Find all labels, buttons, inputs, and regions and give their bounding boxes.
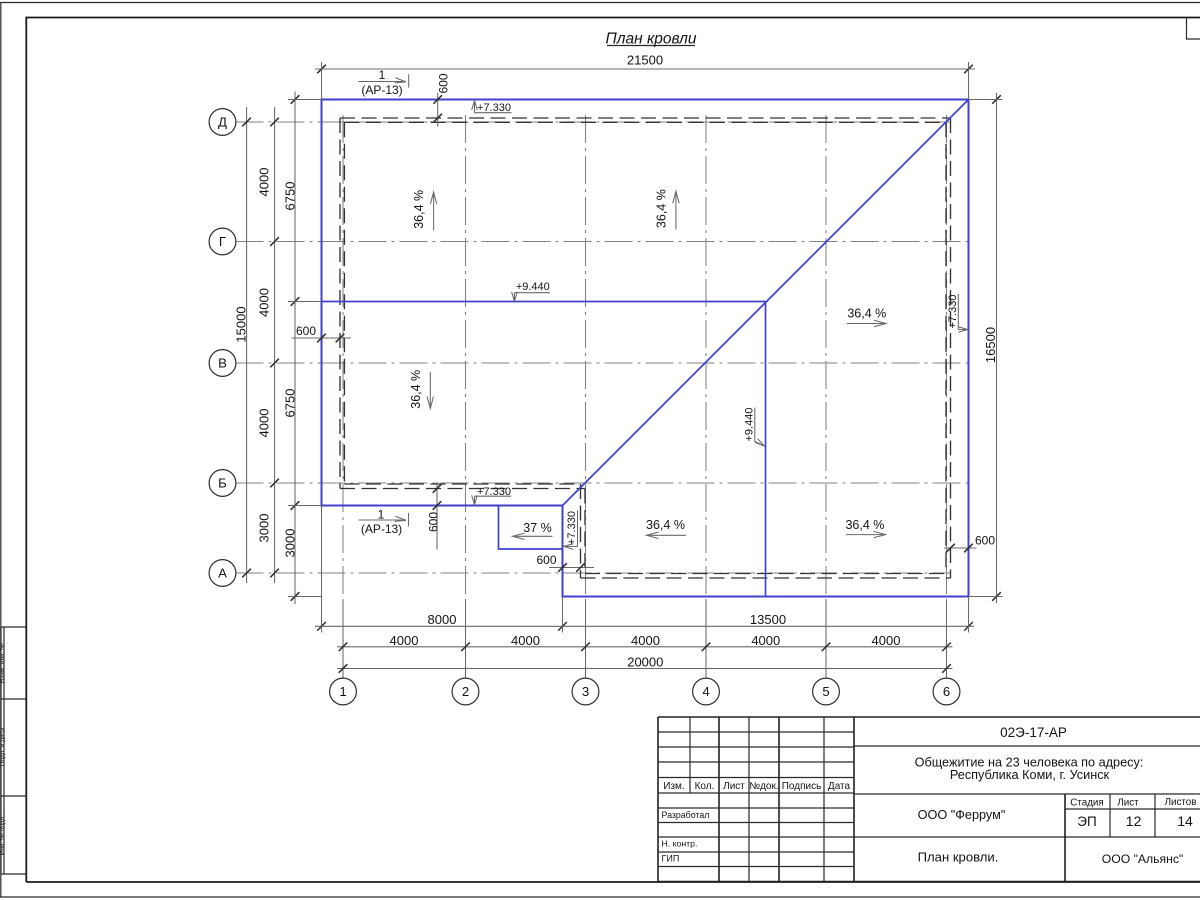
svg-text:(АР-13): (АР-13) [361, 83, 402, 97]
svg-text:Инв. № подл.: Инв. № подл. [0, 815, 6, 856]
svg-text:600: 600 [975, 534, 995, 548]
svg-text:14: 14 [1177, 813, 1193, 829]
svg-text:36,4 %: 36,4 % [655, 189, 669, 228]
svg-text:План кровли.: План кровли. [918, 849, 999, 864]
svg-text:16500: 16500 [983, 327, 998, 363]
svg-text:+9.440: +9.440 [516, 281, 550, 293]
svg-text:37 %: 37 % [523, 521, 552, 535]
svg-text:600: 600 [536, 553, 556, 567]
svg-text:+7.330: +7.330 [947, 295, 959, 329]
svg-text:3000: 3000 [282, 529, 297, 558]
svg-text:1: 1 [379, 68, 386, 82]
svg-text:Республика Коми, г. Усинск: Республика Коми, г. Усинск [950, 768, 1110, 782]
svg-text:4000: 4000 [872, 633, 901, 648]
svg-text:4000: 4000 [256, 409, 271, 438]
svg-text:ООО "Феррум": ООО "Феррум" [918, 808, 1006, 822]
svg-text:4000: 4000 [751, 633, 780, 648]
svg-text:А: А [218, 566, 227, 581]
svg-text:4000: 4000 [256, 168, 271, 197]
svg-text:4000: 4000 [390, 633, 419, 648]
svg-text:4000: 4000 [631, 633, 660, 648]
svg-text:36,4 %: 36,4 % [412, 190, 426, 229]
svg-text:ГИП: ГИП [662, 853, 680, 863]
svg-text:Кол.: Кол. [695, 781, 715, 792]
svg-text:20000: 20000 [627, 655, 663, 670]
svg-text:ООО "Альянс": ООО "Альянс" [1102, 852, 1184, 866]
svg-text:Разработал: Разработал [662, 810, 710, 820]
svg-text:21500: 21500 [627, 53, 663, 68]
svg-text:8000: 8000 [428, 612, 457, 627]
svg-text:План кровли: План кровли [606, 30, 697, 47]
svg-text:Листов: Листов [1165, 797, 1197, 808]
svg-text:2: 2 [462, 684, 469, 699]
svg-text:6750: 6750 [282, 182, 297, 211]
svg-text:02Э-17-АР: 02Э-17-АР [1000, 725, 1067, 740]
svg-text:600: 600 [427, 512, 441, 532]
svg-text:36,4 %: 36,4 % [845, 518, 884, 532]
svg-text:4000: 4000 [511, 633, 540, 648]
svg-text:ЭП: ЭП [1077, 814, 1096, 829]
svg-text:36,4 %: 36,4 % [847, 307, 886, 321]
svg-text:36,4 %: 36,4 % [409, 370, 423, 409]
svg-text:3000: 3000 [256, 514, 271, 543]
svg-text:13500: 13500 [750, 612, 786, 627]
svg-text:6: 6 [943, 684, 950, 699]
svg-text:Подпись: Подпись [782, 781, 822, 792]
svg-text:+9.440: +9.440 [743, 408, 755, 442]
svg-text:5: 5 [822, 684, 829, 699]
svg-text:Дата: Дата [828, 781, 851, 792]
svg-text:Д: Д [218, 115, 227, 130]
svg-text:Стадия: Стадия [1070, 798, 1103, 809]
svg-text:Лист: Лист [1117, 798, 1139, 809]
svg-text:Лист: Лист [723, 781, 745, 792]
svg-text:+7.330: +7.330 [477, 102, 511, 114]
svg-text:Г: Г [219, 234, 226, 249]
svg-text:1: 1 [378, 508, 385, 522]
svg-text:600: 600 [296, 324, 316, 338]
svg-text:15000: 15000 [234, 306, 249, 342]
svg-text:600: 600 [437, 73, 451, 93]
svg-text:Изм.: Изм. [663, 781, 684, 792]
svg-text:(АР-13): (АР-13) [361, 522, 402, 536]
svg-text:1: 1 [339, 684, 346, 699]
svg-text:4: 4 [702, 684, 709, 699]
svg-text:№док.: №док. [749, 781, 778, 792]
svg-text:4000: 4000 [256, 288, 271, 317]
svg-text:36,4 %: 36,4 % [646, 518, 685, 532]
svg-text:+7.330: +7.330 [477, 486, 511, 498]
svg-text:Взам. инв. №: Взам. инв. № [0, 643, 6, 683]
svg-text:3: 3 [582, 684, 589, 699]
svg-text:Б: Б [218, 476, 227, 491]
svg-text:Подп. и дата: Подп. и дата [0, 727, 6, 766]
svg-text:6750: 6750 [282, 389, 297, 418]
svg-text:В: В [218, 356, 227, 371]
svg-text:+7.330: +7.330 [566, 511, 578, 545]
svg-text:Н. контр.: Н. контр. [662, 838, 698, 848]
svg-text:12: 12 [1126, 813, 1142, 829]
